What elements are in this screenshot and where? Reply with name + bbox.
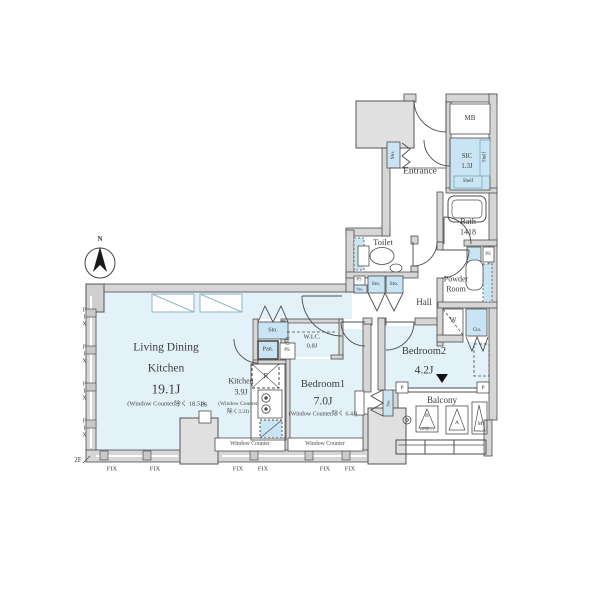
label-pillar-p-right: P: [481, 385, 484, 391]
label-ldk-size: 19.1J: [152, 381, 181, 396]
floor-plan-drawing: [0, 0, 606, 601]
label-fix-left-3: FIX: [81, 382, 88, 403]
stove-icon: [258, 390, 282, 418]
label-balcony: Balcony: [427, 395, 457, 405]
toilet-door: [413, 242, 437, 266]
label-kitchen-note1: (Window Counter: [218, 401, 258, 407]
label-entrance: Entrance: [403, 167, 437, 178]
label-sto-hall-2: Sto.: [390, 281, 399, 287]
label-sic-size: 1.3J: [461, 163, 472, 171]
label-fix-bottom-6: FIX: [345, 465, 355, 472]
corner-pillar: [86, 284, 104, 312]
label-wic: W.I.C.: [304, 333, 321, 340]
label-fix-bottom-5: FIX: [320, 465, 330, 472]
hall-storage-doors: [368, 293, 403, 311]
label-kitchen: Kitchen: [228, 378, 253, 387]
label-pantry: Pan.: [263, 347, 274, 354]
label-closet: Clo.: [473, 328, 481, 334]
label-fridge: R: [263, 372, 268, 380]
label-kitchen-note2: 除く3.3J): [227, 409, 249, 415]
label-ac-unit-b-note: (2F除く): [420, 427, 434, 431]
label-ps-kitchen: PS: [284, 348, 290, 354]
label-bedroom2-size: 4.2J: [415, 365, 434, 378]
label-compass-north: N: [97, 236, 102, 244]
label-ac-unit-a: A: [455, 420, 459, 426]
label-window-counter-1: Window Counter: [230, 441, 270, 447]
label-floor-2f: 2F: [74, 457, 81, 465]
label-bedroom1-size: 7.0J: [314, 396, 333, 409]
label-powder-line2: Room: [446, 286, 466, 295]
label-hall: Hall: [416, 297, 432, 307]
label-bath: Bath: [460, 217, 476, 227]
label-ps-bath: PS: [485, 252, 491, 258]
label-ac-unit-b: B: [425, 413, 429, 419]
label-sto-kitchen: Sto.: [268, 328, 278, 335]
label-ldk-line1: Living Dining: [133, 342, 199, 355]
label-fix-left-2: FIX: [81, 345, 88, 366]
label-shelf-horizontal: Shelf: [463, 179, 474, 185]
label-fix-bottom-4: FIX: [258, 465, 268, 472]
label-fix-bottom-3: FIX: [233, 465, 243, 472]
label-sic: SIC: [462, 153, 473, 161]
entrance-door: [414, 100, 446, 132]
label-bath-size: 1418: [460, 229, 476, 238]
label-bedroom1: Bedroom1: [301, 379, 345, 391]
pillar-south-1: [180, 418, 218, 464]
label-ldk-note: (Window Counter除く 18.5J): [127, 400, 205, 407]
label-ps-toilet: PS: [356, 277, 361, 282]
label-pillar-p-left: P: [400, 385, 403, 391]
ldk-ps-box: [199, 411, 211, 423]
label-ldk-line2: Kitchen: [148, 363, 184, 376]
label-wic-size: 0.8J: [307, 342, 318, 349]
label-fix-bottom-2: FIX: [150, 465, 160, 472]
label-fix-left-1: FIX: [81, 308, 88, 329]
compass-icon: [85, 247, 115, 278]
label-sto-toilet: Sto.: [356, 286, 363, 291]
powder-counter: [483, 264, 492, 302]
label-powder-line1: Powder: [444, 276, 468, 285]
label-sto-hall-1: Sto.: [372, 281, 381, 287]
label-bedroom2: Bedroom2: [402, 346, 446, 358]
floor-plan: Living Dining Kitchen 19.1J (Window Coun…: [0, 0, 606, 601]
powder-sink-icon: [466, 260, 483, 290]
toilet-sink: [390, 264, 402, 272]
label-shelf-vertical: Shelf: [482, 152, 487, 162]
label-wic-side: (M): [286, 337, 292, 345]
balcony-layer: [396, 402, 487, 454]
label-ac-unit-m: M: [478, 421, 483, 427]
label-sto-bedroom1: Sto.: [385, 399, 390, 406]
label-window-counter-2: Window Counter: [305, 441, 345, 447]
toilet-bowl-icon: [370, 248, 394, 265]
toilet-tank: [358, 246, 369, 266]
label-bedroom1-note: (Window Counter除く 6.4J): [289, 412, 358, 419]
label-ps-ldk: PS: [201, 403, 208, 410]
label-fix-left-4: FIX: [81, 419, 88, 440]
label-toilet: Toilet: [373, 238, 393, 248]
balcony-rail: [396, 440, 486, 454]
label-washer: W: [449, 316, 456, 324]
label-meter-box: MB: [465, 115, 476, 123]
label-sto-entrance: Sto.: [390, 151, 396, 160]
label-kitchen-size: 3.9J: [234, 389, 247, 398]
label-fix-bottom-1: FIX: [107, 465, 117, 472]
service-block: [356, 101, 414, 148]
